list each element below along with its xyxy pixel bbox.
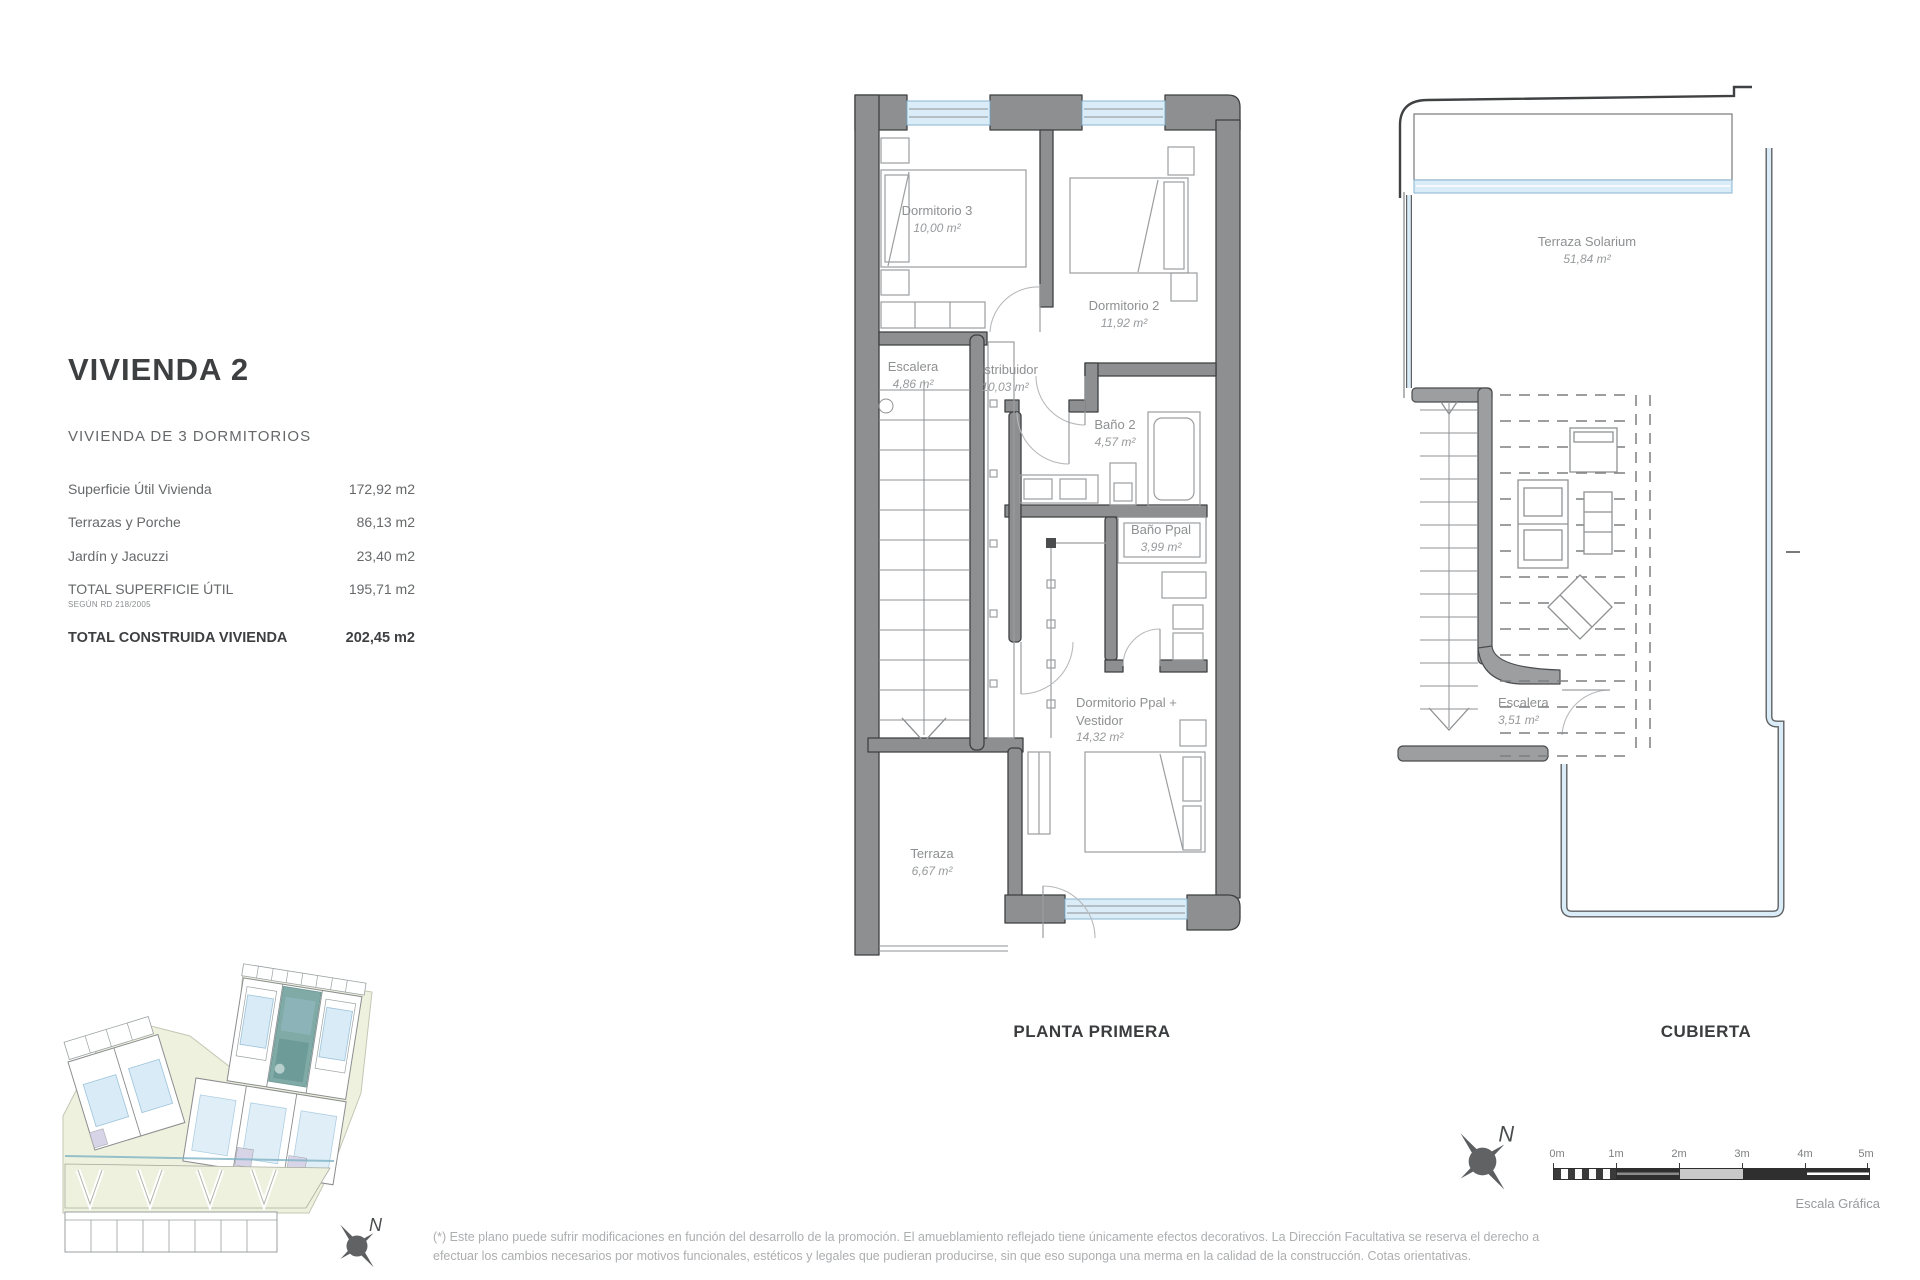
scale-tick-label: 5m <box>1858 1148 1873 1160</box>
room-label-cubierta-escalera: Escalera 3,51 m² <box>1498 694 1608 728</box>
summary-note: SEGÚN RD 218/2005 <box>68 600 151 609</box>
summary-total-row: TOTAL CONSTRUIDA VIVIENDA 202,45 m2 <box>68 630 415 646</box>
summary-value: 202,45 m2 <box>295 630 415 646</box>
summary-value: 172,92 m2 <box>295 481 415 497</box>
room-label-terraza: Terraza 6,67 m² <box>872 845 992 879</box>
summary-label: Terrazas y Porche <box>68 514 181 530</box>
scale-tick-label: 1m <box>1608 1148 1623 1160</box>
summary-label: TOTAL CONSTRUIDA VIVIENDA <box>68 630 287 646</box>
scale-bar-caption: Escala Gráfica <box>1680 1196 1880 1211</box>
room-label-bano2: Baño 2 4,57 m² <box>1055 416 1175 450</box>
room-label-dormppal: Dormitorio Ppal + Vestidor 14,32 m² <box>1076 694 1226 745</box>
summary-row: Superficie Útil Vivienda 172,92 m2 <box>68 481 415 497</box>
summary-row: Jardín y Jacuzzi 23,40 m2 <box>68 548 415 564</box>
cubierta-drawing <box>1390 80 1800 940</box>
floorplan-sheet: VIVIENDA 2 VIVIENDA DE 3 DORMITORIOS Sup… <box>0 0 1920 1280</box>
disclaimer-line1: (*) Este plano puede sufrir modificacion… <box>433 1228 1908 1247</box>
page-subtitle: VIVIENDA DE 3 DORMITORIOS <box>68 428 311 445</box>
compass-north-label: N <box>369 1215 383 1235</box>
scale-tick-label: 0m <box>1549 1148 1564 1160</box>
caption-cubierta: CUBIERTA <box>1596 1022 1816 1042</box>
summary-label: TOTAL SUPERFICIE ÚTIL <box>68 581 233 597</box>
scale-bar-segments <box>1553 1168 1870 1180</box>
room-label-solarium: Terraza Solarium 51,84 m² <box>1507 233 1667 267</box>
room-label-dormitorio2: Dormitorio 2 11,92 m² <box>1044 297 1204 331</box>
compass-icon: N <box>321 1210 393 1280</box>
disclaimer: (*) Este plano puede sufrir modificacion… <box>433 1228 1908 1266</box>
room-label-distribuidor: Distribuidor 10,03 m² <box>945 361 1065 395</box>
summary-value: 86,13 m2 <box>295 514 415 530</box>
scale-tick-label: 3m <box>1734 1148 1749 1160</box>
summary-row: Terrazas y Porche 86,13 m2 <box>68 514 415 530</box>
scale-tick-label: 4m <box>1797 1148 1812 1160</box>
summary-label: Jardín y Jacuzzi <box>68 548 168 564</box>
summary-label: Superficie Útil Vivienda <box>68 481 212 497</box>
compass-north-label: N <box>1498 1122 1514 1147</box>
disclaimer-line2: efectuar los cambios necesarios por moti… <box>433 1247 1908 1266</box>
page-title: VIVIENDA 2 <box>68 352 249 388</box>
room-label-banoppal: Baño Ppal 3,99 m² <box>1101 521 1221 555</box>
summary-value: 23,40 m2 <box>295 548 415 564</box>
compass-icon: N <box>1435 1114 1530 1209</box>
caption-planta-primera: PLANTA PRIMERA <box>982 1022 1202 1042</box>
scale-tick-label: 2m <box>1671 1148 1686 1160</box>
scale-bar: 0m 1m 2m 3m 4m 5m <box>1553 1148 1869 1184</box>
summary-row: TOTAL SUPERFICIE ÚTIL 195,71 m2 <box>68 581 415 597</box>
summary-value: 195,71 m2 <box>295 581 415 597</box>
room-label-dormitorio3: Dormitorio 3 10,00 m² <box>857 202 1017 236</box>
